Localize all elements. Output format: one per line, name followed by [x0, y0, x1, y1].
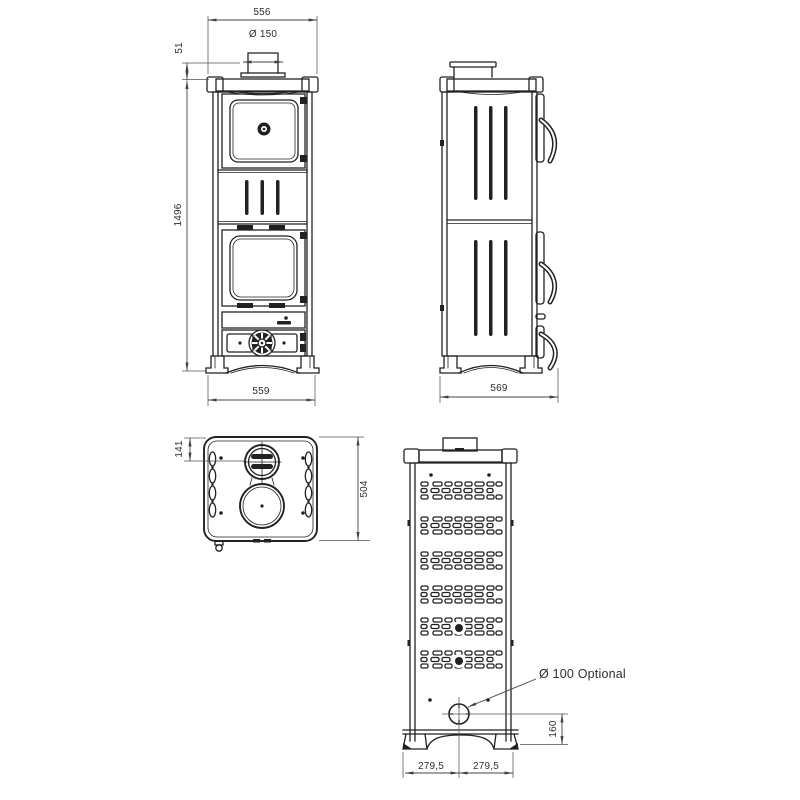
side-view	[440, 62, 555, 373]
stove-technical-drawing-page: 556 Ø 150 51 1496 559 569 141 504 Ø 100 …	[0, 0, 800, 800]
vent-grid-back	[421, 482, 502, 668]
top-view	[204, 437, 317, 551]
flue-collar-front	[241, 53, 285, 77]
vent-band-front	[218, 170, 307, 224]
dim-back-half-right: 279,5	[461, 761, 511, 773]
dim-front-height: 1496	[173, 198, 185, 232]
flue-collar-side	[450, 62, 496, 77]
flue-stub-back	[443, 438, 477, 451]
dim-back-half-left: 279,5	[406, 761, 456, 773]
dim-back-flue-height: 160	[548, 715, 560, 743]
door-handles-side	[536, 94, 555, 368]
fire-door	[222, 225, 307, 308]
dim-front-flue-diameter: Ø 150	[233, 29, 293, 41]
flue-collar-top	[244, 442, 281, 485]
hot-plate-top	[240, 484, 284, 528]
oven-door	[222, 94, 307, 168]
dim-front-width-top: 556	[232, 7, 292, 19]
air-control-strip	[222, 312, 305, 328]
back-view	[403, 438, 518, 749]
dim-top-flue-offset: 141	[174, 435, 186, 463]
ash-drawer-band	[222, 330, 306, 356]
optional-flue-leader	[468, 679, 536, 707]
front-view	[206, 53, 319, 373]
dim-front-flue-height: 51	[174, 35, 186, 61]
vent-slots-side	[440, 106, 508, 336]
legs-side	[440, 356, 542, 373]
legs-front	[206, 356, 319, 373]
dim-top-depth: 504	[359, 475, 371, 503]
dim-side-depth: 569	[469, 383, 529, 395]
stove-drawing	[0, 0, 800, 800]
dim-front-width-bottom: 559	[231, 386, 291, 398]
optional-flue-callout: Ø 100 Optional	[539, 668, 659, 680]
base-back	[403, 730, 518, 749]
